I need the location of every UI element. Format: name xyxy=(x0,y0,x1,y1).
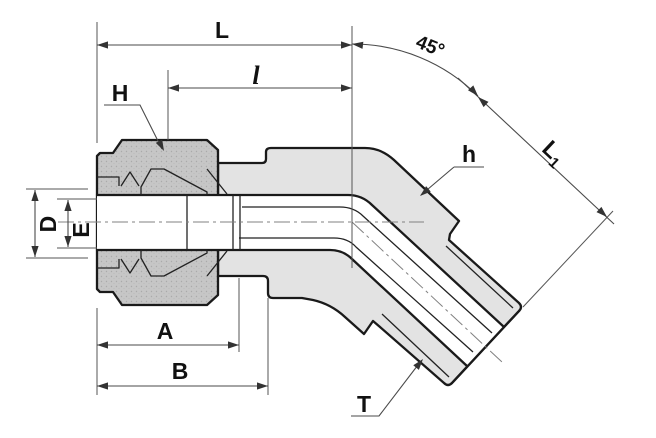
dim-label-B: B xyxy=(172,358,189,384)
dim-label-l: l xyxy=(252,61,260,90)
fitting-technical-drawing: L l 45° H h L1 D E A B T xyxy=(0,0,656,438)
dim-label-A: A xyxy=(157,318,174,344)
dim-label-D: D xyxy=(35,216,61,233)
technical-drawing-canvas: L l 45° H h L1 D E A B T xyxy=(0,0,656,438)
dim-label-h: h xyxy=(462,141,476,167)
dim-label-L: L xyxy=(215,17,229,43)
dim-label-T: T xyxy=(357,391,371,417)
dim-label-H: H xyxy=(112,80,129,106)
angle-label: 45° xyxy=(413,32,448,62)
dim-label-E: E xyxy=(68,222,94,237)
dim-label-L1: L1 xyxy=(535,135,572,172)
